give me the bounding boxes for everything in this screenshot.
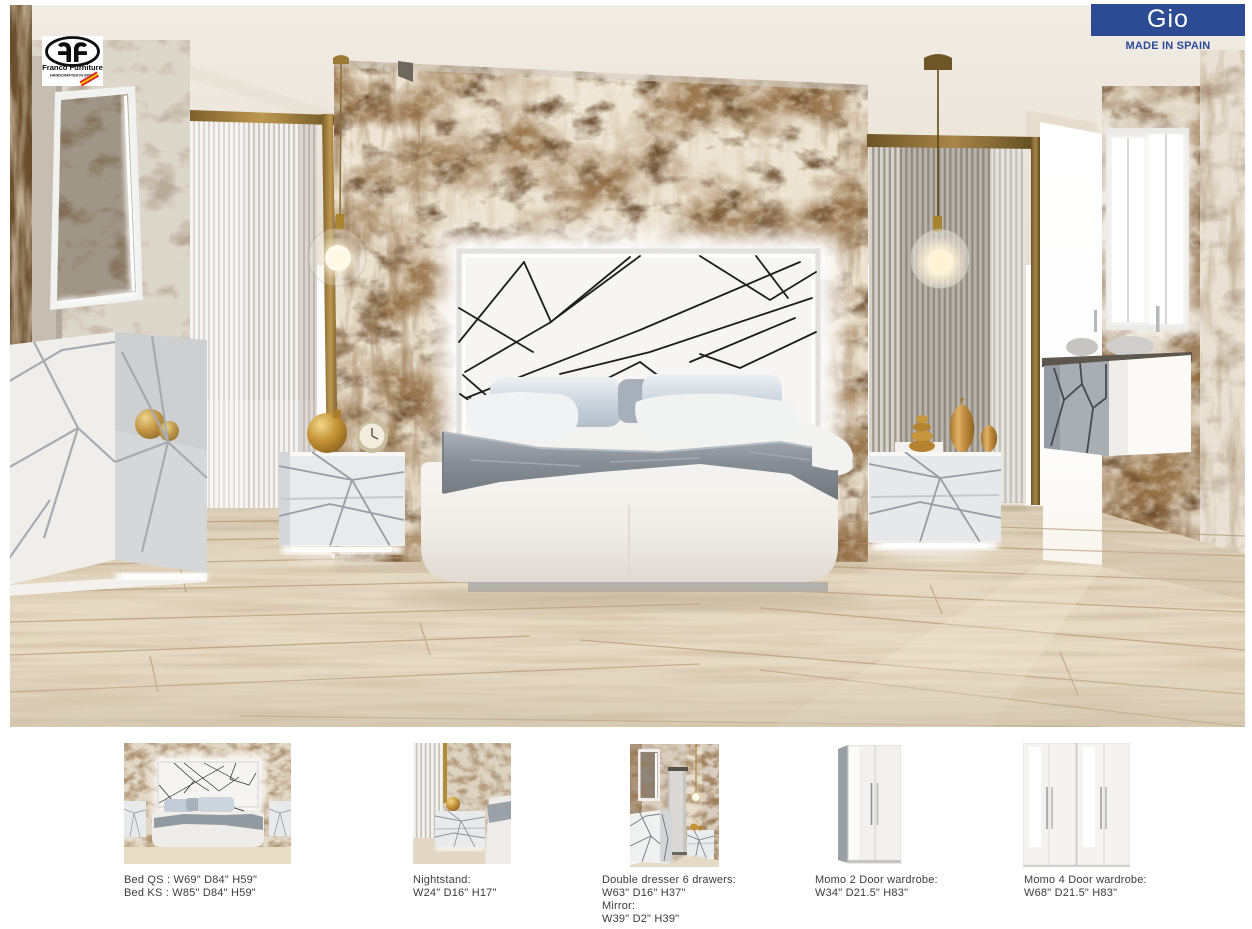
svg-text:Franco Furniture: Franco Furniture	[42, 63, 103, 72]
